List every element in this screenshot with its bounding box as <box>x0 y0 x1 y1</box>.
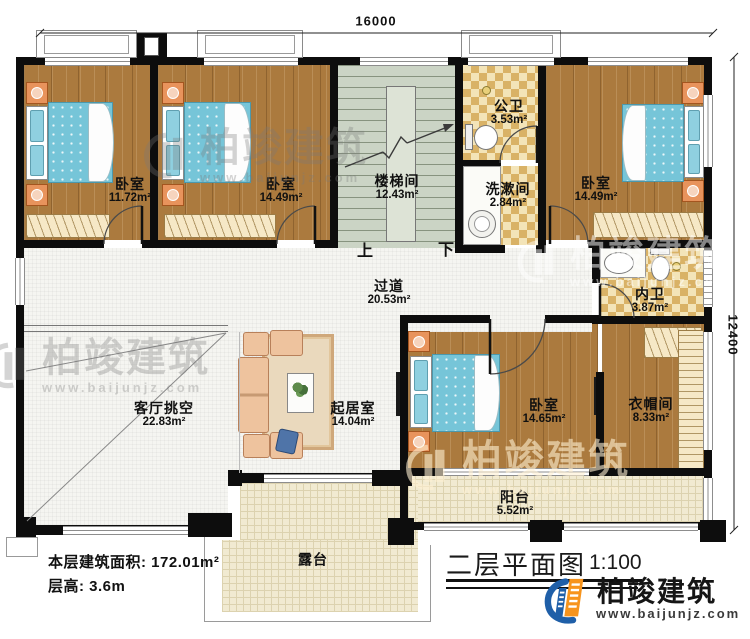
room-label-inner-bath: 内卫3.87m² <box>632 287 668 315</box>
room-label-public-bath: 公卫3.53m² <box>491 99 527 127</box>
room-label-corridor: 过道20.53m² <box>368 279 411 307</box>
brand-logo-icon <box>540 574 595 624</box>
void-diagonals <box>26 333 226 521</box>
room-label-washroom: 洗漱间2.84m² <box>486 182 531 210</box>
floor-area-note: 本层建筑面积: 172.01m² <box>48 551 219 572</box>
room-label-balcony: 阳台5.52m² <box>497 490 533 518</box>
room-label-terrace: 露台 <box>298 552 328 567</box>
brand-url: www.baijunjz.com <box>596 606 740 621</box>
room-label-stairwell: 楼梯间12.43m² <box>375 174 420 202</box>
room-label-bedroom-tr: 卧室14.49m² <box>575 176 618 204</box>
linework-overlay <box>0 0 750 639</box>
stair-arrowhead <box>443 124 454 132</box>
room-label-cloakroom: 衣帽间8.33m² <box>629 397 674 425</box>
stair-up-label: 上 <box>357 237 373 261</box>
floor-height-note: 层高: 3.6m <box>48 575 125 596</box>
floor-plan-canvas: 卧室11.72m² 卧室14.49m² 楼梯间12.43m² 公卫3.53m² … <box>0 0 750 639</box>
room-label-bedroom-tl: 卧室11.72m² <box>109 177 151 205</box>
stair-down-label: 下 <box>438 236 454 260</box>
room-label-bedroom-b: 卧室14.65m² <box>523 398 566 426</box>
plan-scale: 1:100 <box>589 551 642 575</box>
dimension-right: 12400 <box>726 314 741 355</box>
dimension-top: 16000 <box>355 14 396 29</box>
stair-direction-line <box>345 126 450 167</box>
room-label-sitting-room: 起居室14.04m² <box>331 401 376 429</box>
brand-name: 柏竣建筑 <box>597 578 717 606</box>
room-label-bedroom-tm: 卧室14.49m² <box>260 177 303 205</box>
room-label-living-void: 客厅挑空22.83m² <box>134 401 194 429</box>
